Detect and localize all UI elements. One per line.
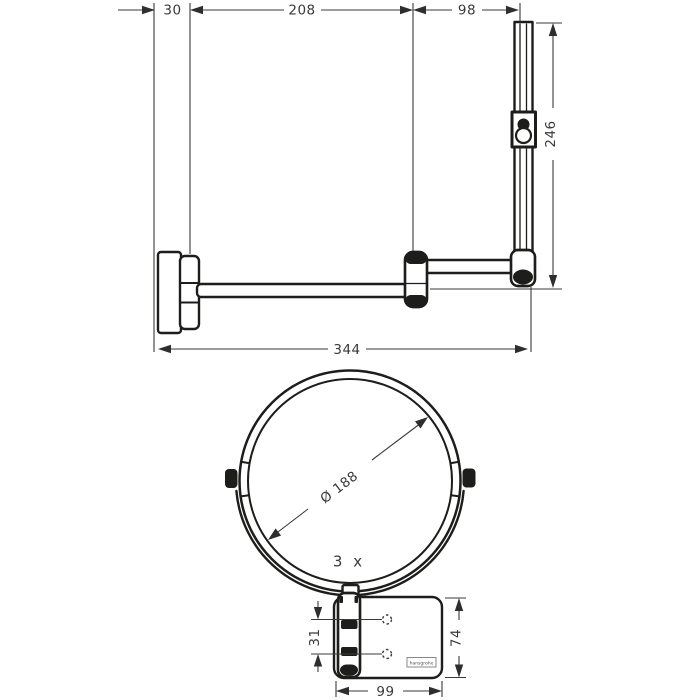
- dim-mirror-diameter-label: Ø 188: [317, 468, 361, 507]
- dim-bar-offset-label: 98: [458, 3, 476, 19]
- dim-plate-width: 99: [336, 681, 442, 700]
- dim-total-reach-label: 344: [333, 342, 360, 358]
- mounting-post: [338, 593, 360, 677]
- dim-mirror-diameter: Ø 188: [268, 417, 428, 540]
- technical-drawing-page: 30 208 98 246 344: [0, 0, 700, 700]
- upper-arm: [426, 260, 513, 273]
- dim-bar-offset: 98: [413, 3, 519, 19]
- elbow-joint: [511, 250, 535, 286]
- side-view: 30 208 98 246 344: [118, 3, 562, 358]
- right-pivot-knob: [463, 469, 476, 488]
- dim-plate-height: 74: [445, 598, 466, 678]
- slider-ring-icon: [516, 128, 531, 143]
- wall-plate: [158, 252, 181, 333]
- front-view: Ø 188 3 x hansgrohe: [225, 371, 476, 700]
- rail-slider: [512, 112, 536, 147]
- dim-total-reach: 344: [158, 342, 528, 358]
- dim-plate-width-label: 99: [376, 684, 394, 700]
- dim-arm-length: 208: [190, 3, 413, 19]
- holder-ring: [236, 491, 463, 595]
- arm-pivot: [405, 252, 427, 307]
- dim-bar-height-label: 246: [543, 120, 559, 147]
- side-view-extension-lines: [154, 3, 562, 352]
- left-pivot-knob: [225, 469, 238, 488]
- dim-plate-height-label: 74: [449, 629, 465, 647]
- magnification-label: 3 x: [333, 553, 365, 571]
- dim-wall-depth: 30: [118, 3, 182, 19]
- hansgrohe-logo-text: hansgrohe: [410, 661, 434, 667]
- dim-wall-depth-label: 30: [163, 3, 181, 19]
- hansgrohe-logo: hansgrohe: [407, 658, 436, 668]
- lower-arm: [197, 284, 407, 297]
- dim-arm-length-label: 208: [288, 3, 315, 19]
- dim-hole-spacing-label: 31: [307, 628, 323, 646]
- dim-hole-spacing: 31: [307, 601, 323, 672]
- dim-bar-height: 246: [543, 23, 559, 288]
- drawing-svg: 30 208 98 246 344: [0, 0, 700, 700]
